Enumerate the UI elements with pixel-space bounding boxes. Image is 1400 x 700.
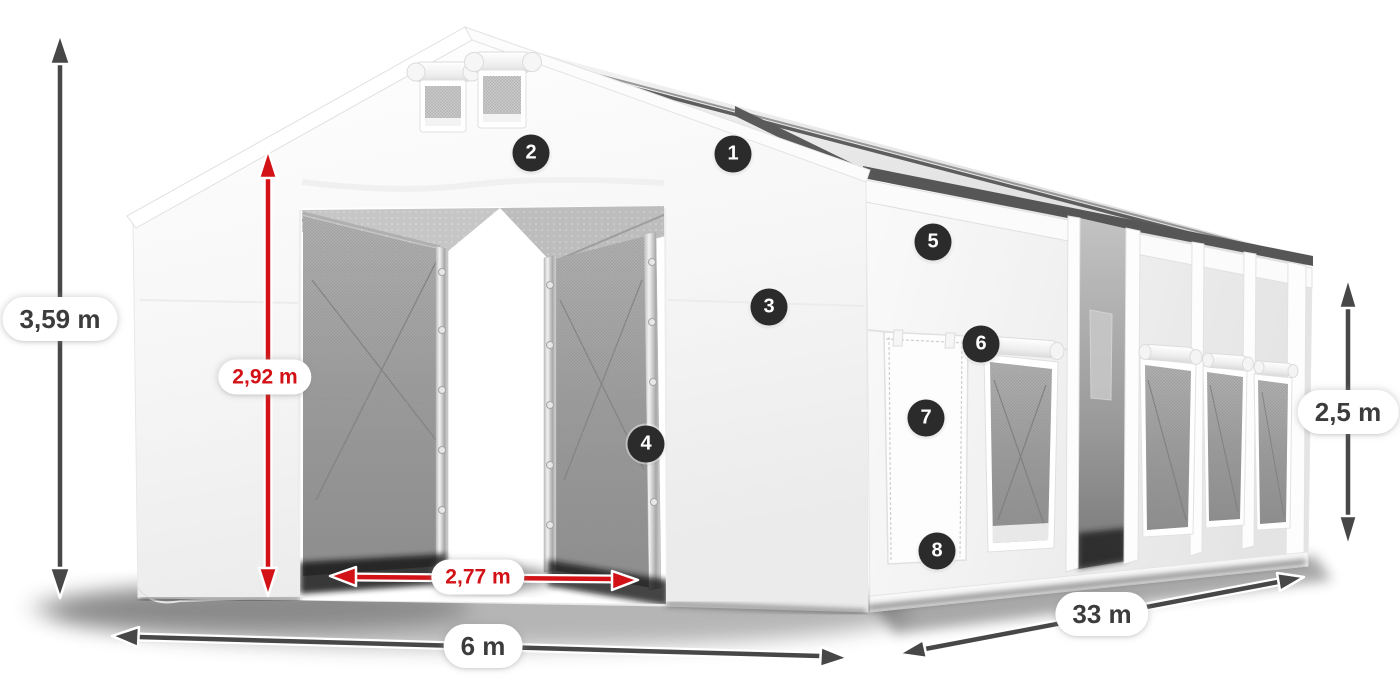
side-open-doorway (1078, 218, 1128, 569)
dimension-label-width: 6 m (446, 626, 521, 666)
dimension-label-entrance-width: 2,77 m (433, 562, 522, 593)
tent-illustration (0, 0, 1400, 700)
dimension-label-total-height: 3,59 m (5, 299, 116, 339)
callout-badge-7: 7 (908, 400, 945, 437)
callout-badge-5: 5 (915, 224, 952, 261)
callout-badge-8: 8 (919, 533, 956, 570)
callout-badge-2: 2 (513, 135, 550, 172)
inner-mesh-panel-left (303, 213, 440, 576)
side-window-1 (983, 336, 1064, 552)
inner-mesh-panel-right (552, 236, 652, 588)
side-window-2 (1139, 344, 1202, 537)
product-illustration: 3,59 m 2,92 m 2,77 m 6 m 33 m 2,5 m 1 2 … (0, 0, 1400, 700)
front-opening (300, 206, 668, 606)
callout-badge-3: 3 (751, 289, 788, 326)
callout-badge-1: 1 (715, 136, 752, 173)
dimension-label-length: 33 m (1057, 594, 1146, 634)
callout-badge-6: 6 (963, 326, 1000, 363)
callout-badge-4: 4 (628, 426, 665, 463)
side-entrance-door (884, 330, 968, 564)
dimension-label-entrance-height: 2,92 m (220, 362, 309, 393)
dimension-label-side-height: 2,5 m (1300, 392, 1397, 432)
